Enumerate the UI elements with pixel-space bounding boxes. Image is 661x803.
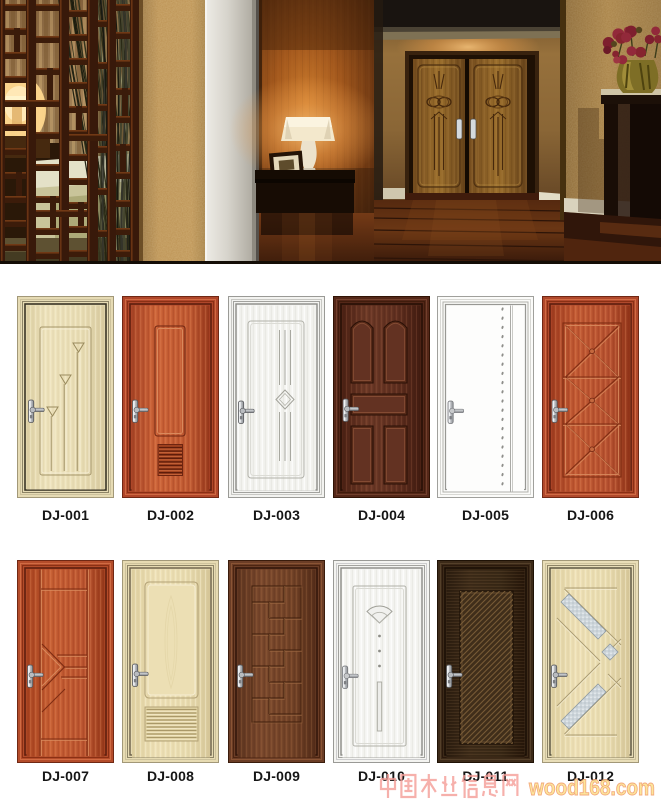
svg-text:wood168.com: wood168.com (528, 775, 655, 800)
